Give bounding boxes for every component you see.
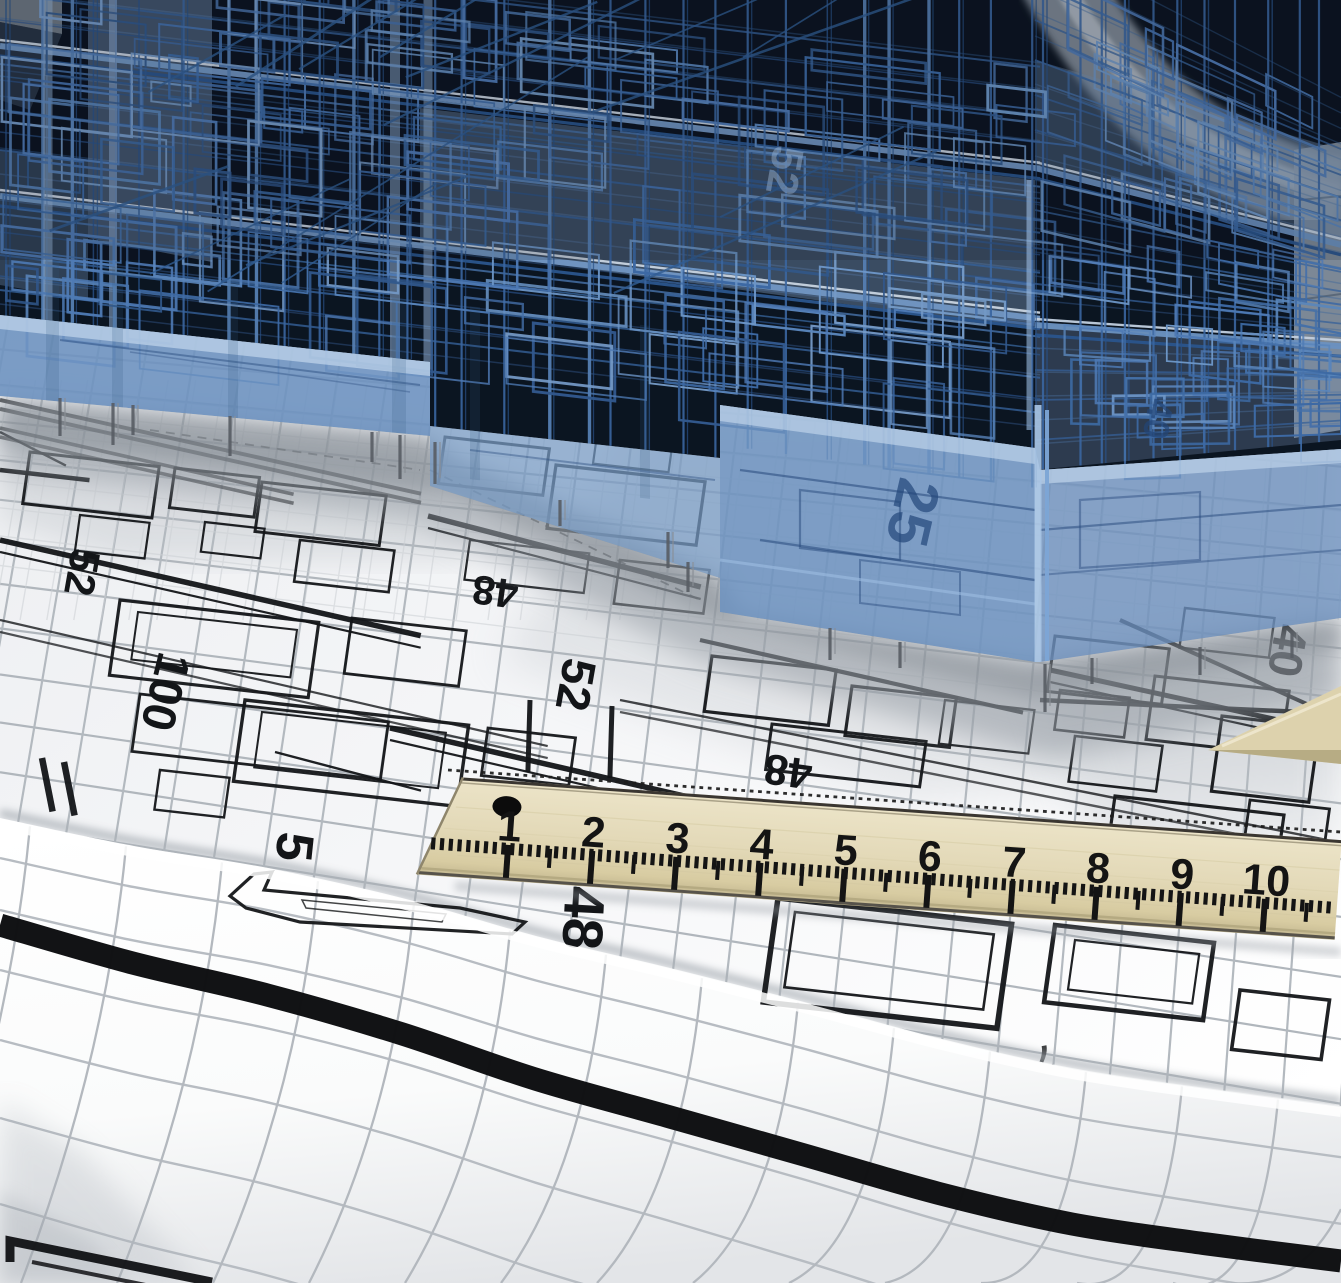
svg-text:52: 52 (756, 142, 813, 199)
svg-text:6: 6 (916, 832, 943, 882)
svg-text:5: 5 (264, 829, 325, 864)
svg-text:48: 48 (761, 744, 815, 798)
svg-text:52: 52 (55, 545, 109, 599)
svg-text:48: 48 (469, 566, 521, 618)
svg-text:4: 4 (748, 820, 775, 870)
svg-text:52: 52 (546, 655, 607, 716)
svg-text:40: 40 (1135, 396, 1182, 443)
svg-text:1: 1 (496, 802, 523, 852)
